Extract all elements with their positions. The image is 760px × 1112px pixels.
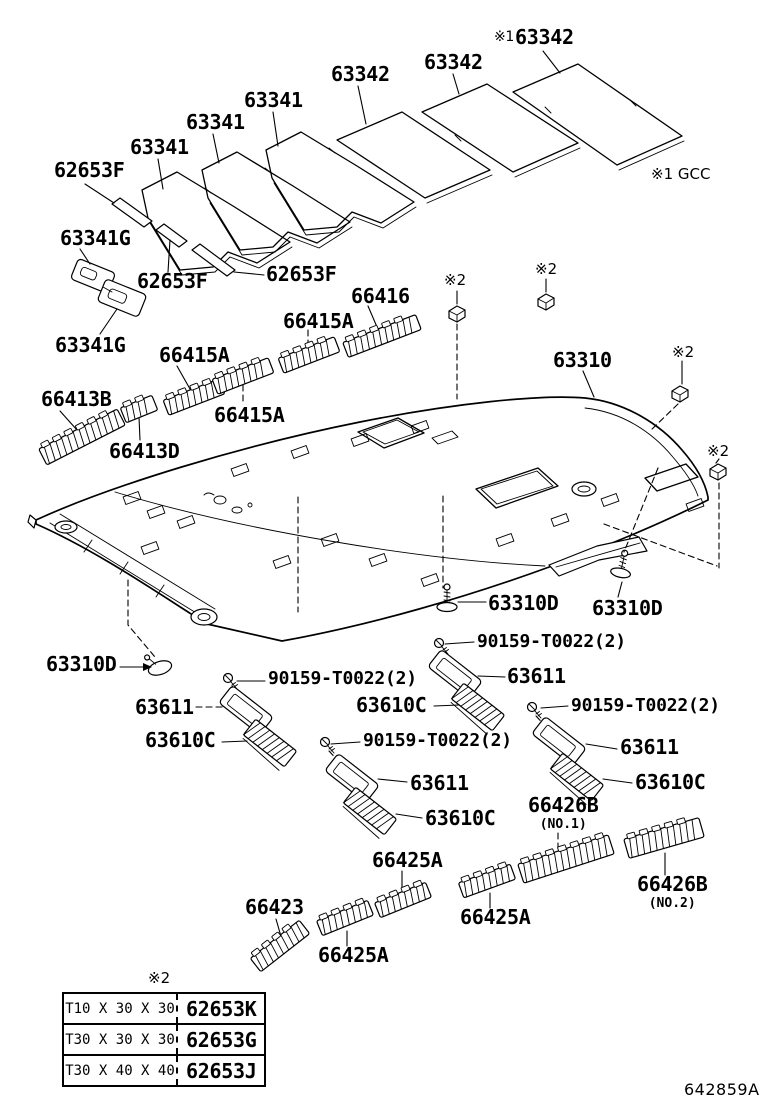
thickness-table: T10 X 30 X 30 62653K T30 X 30 X 30 62653… bbox=[62, 992, 266, 1087]
part-label-63341G: 63341G bbox=[55, 335, 125, 355]
part-label-66425A: 66425A bbox=[318, 945, 388, 965]
part-label-63310: 63310 bbox=[553, 350, 612, 370]
leader-lines bbox=[60, 51, 719, 946]
slot-cutout bbox=[551, 514, 569, 527]
clip-strip bbox=[516, 831, 614, 883]
part-label-63611: 63611 bbox=[410, 773, 469, 793]
part-label-63610C: 63610C bbox=[425, 808, 495, 828]
star2-marker: ※2 bbox=[707, 444, 729, 459]
part-number-suffix: (NO.1) bbox=[528, 818, 598, 831]
table-star2-marker: ※2 bbox=[148, 971, 170, 986]
clip-strip bbox=[277, 333, 340, 373]
clip-cube-icon bbox=[538, 294, 554, 310]
parts-catalog-figure: 63342 63342 ※1 63342 63341 63341 63341 6… bbox=[0, 0, 760, 1112]
part-label-62653F: 62653F bbox=[54, 160, 124, 180]
part-label-63341: 63341 bbox=[186, 112, 245, 132]
table-row: T30 X 30 X 30 62653G bbox=[64, 1023, 264, 1054]
part-number: 63342 bbox=[515, 27, 574, 47]
clip-strip bbox=[315, 897, 373, 936]
slot-cutout bbox=[231, 464, 249, 477]
part-label-66413B: 66413B bbox=[41, 389, 111, 409]
table-cell-part: 62653J bbox=[176, 1056, 264, 1085]
part-label-90159-T0022: 90159-T0022(2) bbox=[477, 633, 626, 651]
table-cell-size: T30 X 40 X 40 bbox=[64, 1056, 176, 1085]
clip-strip bbox=[457, 860, 516, 898]
slot-cutout bbox=[421, 574, 439, 587]
part-label-63611: 63611 bbox=[135, 697, 194, 717]
drawing-code: 642859A bbox=[684, 1080, 760, 1099]
clip-63310D-left bbox=[143, 649, 173, 678]
part-label-90159-T0022: 90159-T0022(2) bbox=[571, 697, 720, 715]
part-label-66423: 66423 bbox=[245, 897, 304, 917]
slot-cutout bbox=[141, 542, 159, 555]
part-label-63341: 63341 bbox=[244, 90, 303, 110]
table-row: T30 X 40 X 40 62653J bbox=[64, 1054, 264, 1085]
table-cell-size: T30 X 30 X 30 bbox=[64, 1025, 176, 1054]
slot-cutout bbox=[369, 554, 387, 567]
slot-cutout bbox=[291, 446, 309, 459]
part-label-66415A: 66415A bbox=[283, 311, 353, 331]
bracket-63341G bbox=[70, 258, 147, 317]
part-label-63342: 63342 bbox=[331, 64, 390, 84]
table-cell-size: T10 X 30 X 30 bbox=[64, 994, 176, 1023]
part-label-66425A: 66425A bbox=[372, 850, 442, 870]
slot-cutout bbox=[496, 534, 514, 547]
clip-cube-icon bbox=[672, 386, 688, 402]
part-label-63310D: 63310D bbox=[46, 654, 116, 674]
part-number: 66426B bbox=[637, 874, 707, 894]
clip-cube-icon bbox=[710, 464, 726, 480]
part-label-63342: 63342 bbox=[424, 52, 483, 72]
slot-cutout bbox=[351, 434, 369, 447]
part-label-63341: 63341 bbox=[130, 137, 189, 157]
star2-marker: ※2 bbox=[535, 262, 557, 277]
slot-cutout bbox=[147, 506, 165, 519]
clip-strip bbox=[248, 917, 310, 972]
clip-strip bbox=[119, 392, 158, 423]
clip-cube-icon bbox=[449, 306, 465, 322]
part-label-66416: 66416 bbox=[351, 286, 410, 306]
part-label-90159-T0022: 90159-T0022(2) bbox=[268, 670, 417, 688]
table-cell-part: 62653K bbox=[176, 994, 264, 1023]
part-number: 66426B bbox=[528, 795, 598, 815]
part-label-62653F: 62653F bbox=[266, 264, 336, 284]
part-label-62653F: 62653F bbox=[137, 271, 207, 291]
slot-cutout bbox=[177, 516, 195, 529]
clip-strip bbox=[623, 814, 705, 859]
part-label-66415A: 66415A bbox=[159, 345, 229, 365]
part-label-63310D: 63310D bbox=[488, 593, 558, 613]
screw-icon bbox=[321, 738, 335, 754]
vent-grille bbox=[448, 683, 505, 736]
star2-marker: ※2 bbox=[672, 345, 694, 360]
part-label-63610C: 63610C bbox=[635, 772, 705, 792]
part-label-63341G: 63341G bbox=[60, 228, 130, 248]
star2-marker: ※2 bbox=[444, 273, 466, 288]
part-label-63610C: 63610C bbox=[356, 695, 426, 715]
screw-icon bbox=[224, 674, 238, 690]
screw-icon bbox=[528, 703, 542, 719]
part-label-66415A: 66415A bbox=[214, 405, 284, 425]
slot-cutout bbox=[601, 494, 619, 507]
screw-63310D-mid bbox=[437, 584, 457, 612]
star1-prefix: ※1 bbox=[494, 29, 514, 45]
part-label-63310D: 63310D bbox=[592, 598, 662, 618]
part-label-63610C: 63610C bbox=[145, 730, 215, 750]
vent-grille bbox=[240, 719, 297, 772]
table-row: T10 X 30 X 30 62653K bbox=[64, 994, 264, 1023]
region-note-gcc: ※1 GCC bbox=[651, 167, 710, 182]
part-label-66425A: 66425A bbox=[460, 907, 530, 927]
table-cell-part: 62653G bbox=[176, 1025, 264, 1054]
slot-cutout bbox=[123, 492, 141, 505]
part-label-63611: 63611 bbox=[620, 737, 679, 757]
part-label-63611: 63611 bbox=[507, 666, 566, 686]
part-label-90159-T0022: 90159-T0022(2) bbox=[363, 732, 512, 750]
part-label-66413D: 66413D bbox=[109, 441, 179, 461]
part-label-66426B-no1: 66426B (NO.1) bbox=[528, 795, 598, 831]
part-label-63342-star1: ※1 63342 bbox=[494, 27, 574, 47]
part-number-suffix: (NO.2) bbox=[637, 897, 707, 910]
slot-cutout bbox=[273, 556, 291, 569]
part-label-66426B-no2: 66426B (NO.2) bbox=[637, 874, 707, 910]
